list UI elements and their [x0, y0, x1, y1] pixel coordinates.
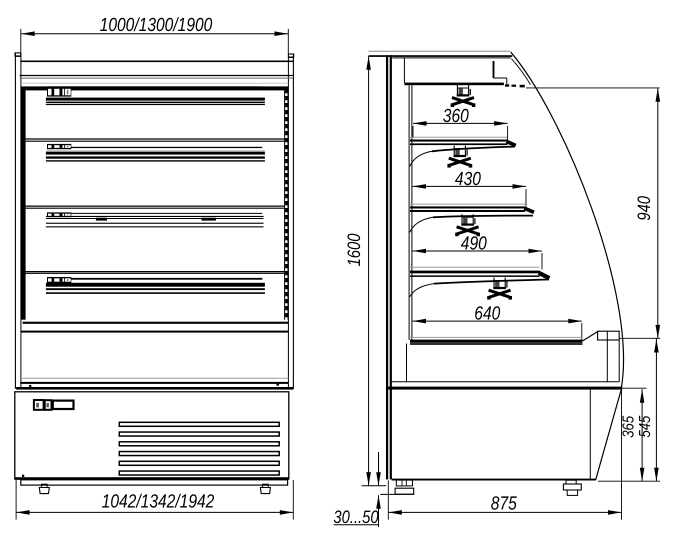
svg-text:545: 545 — [637, 416, 654, 438]
svg-text:875: 875 — [491, 493, 517, 514]
svg-text:365: 365 — [620, 416, 637, 438]
svg-text:1042/1342/1942: 1042/1342/1942 — [102, 492, 215, 513]
svg-text:940: 940 — [634, 196, 654, 221]
svg-text:430: 430 — [455, 169, 481, 190]
svg-text:640: 640 — [474, 304, 500, 325]
svg-text:360: 360 — [443, 106, 469, 127]
svg-text:30...50: 30...50 — [333, 507, 378, 527]
svg-text:490: 490 — [461, 234, 487, 255]
svg-text:1600: 1600 — [344, 234, 364, 267]
svg-text:1000/1300/1900: 1000/1300/1900 — [100, 15, 213, 36]
